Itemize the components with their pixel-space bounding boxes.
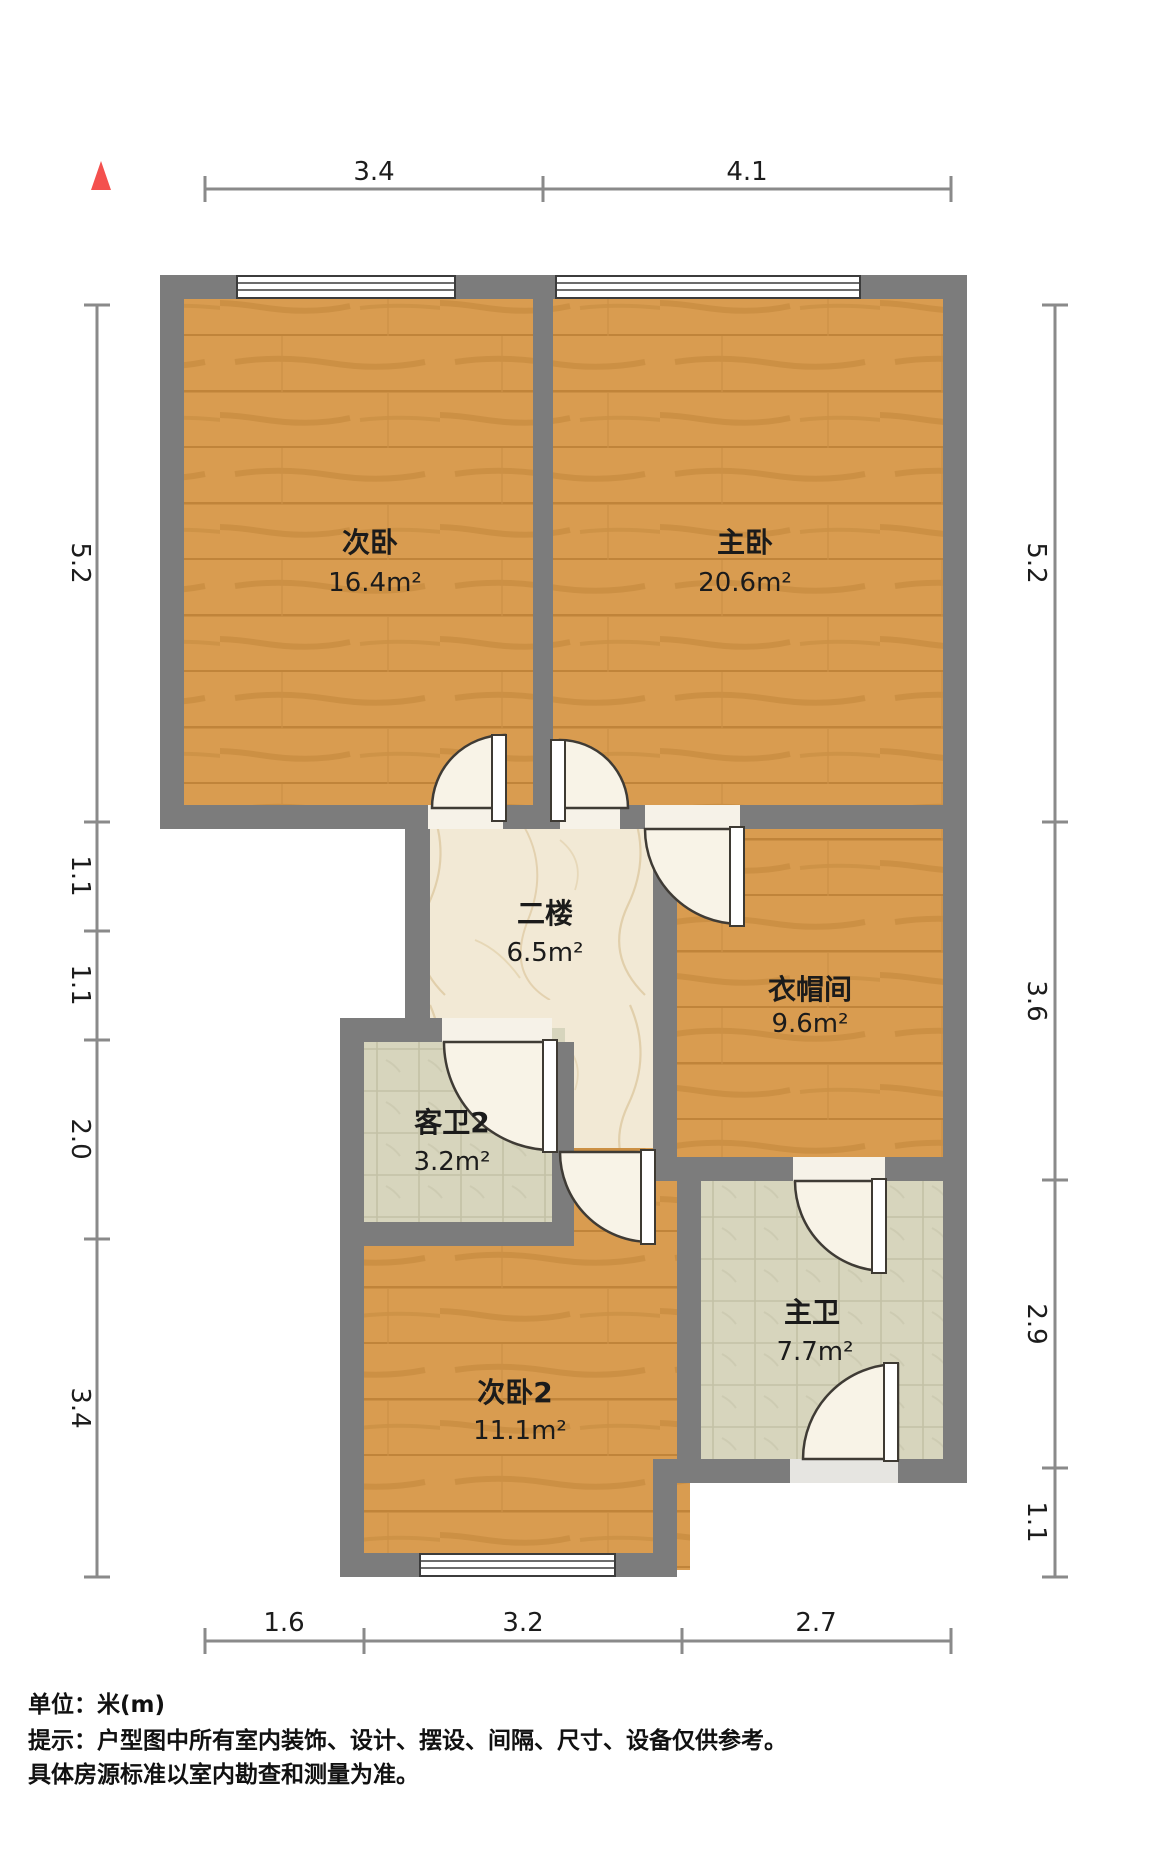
room-area-bedroom2: 16.4m²: [328, 568, 422, 598]
dim-right-4: 1.1: [1021, 1501, 1051, 1542]
dim-top-1: 3.4: [353, 157, 394, 187]
threshold: [645, 805, 740, 829]
room-area-cloakroom: 9.6m²: [771, 1009, 848, 1039]
dim-right-1: 5.2: [1021, 542, 1051, 583]
dim-top-2: 4.1: [726, 157, 767, 187]
room-area-hall: 6.5m²: [506, 938, 583, 968]
dim-bottom-3: 2.7: [795, 1608, 836, 1638]
room-name-cloakroom: 衣帽间: [768, 973, 852, 1006]
room-name-bedroom2: 次卧: [342, 526, 398, 559]
wall-bedroom-divider: [533, 275, 553, 808]
wall-right: [943, 275, 967, 1483]
room-area-master-bath: 7.7m²: [776, 1337, 853, 1367]
dim-bottom-1: 1.6: [263, 1608, 304, 1638]
wall-bedrooms-bottom: [160, 805, 428, 829]
wall-guest-bath-bottom: [340, 1222, 574, 1246]
window: [556, 276, 860, 298]
room-area-bedroom3: 11.1m²: [473, 1416, 567, 1446]
wall-guest-bath-top: [340, 1018, 442, 1042]
dim-left-3: 1.1: [65, 964, 95, 1005]
floor-plan-svg: 3.4 4.1 5.2 1.1 1.1 2.0 3.4 5.2 3.6 2.9 …: [0, 0, 1156, 1866]
footer-notes: 单位：米(m) 提示：户型图中所有室内装饰、设计、摆设、间隔、尺寸、设备仅供参考…: [28, 1691, 787, 1788]
room-name-bedroom3: 次卧2: [477, 1376, 552, 1409]
floor-plan-canvas: 3.4 4.1 5.2 1.1 1.1 2.0 3.4 5.2 3.6 2.9 …: [0, 0, 1156, 1866]
threshold: [793, 1157, 885, 1181]
note-line-1: 提示：户型图中所有室内装饰、设计、摆设、间隔、尺寸、设备仅供参考。: [28, 1727, 787, 1754]
wall-cloakroom-bath-divider: [885, 1157, 943, 1181]
dim-left-1: 5.2: [65, 542, 95, 583]
dim-left-2: 1.1: [65, 855, 95, 896]
unit-label: 单位：米(m): [28, 1691, 165, 1718]
wall-west-lower: [340, 1018, 364, 1577]
wall-bedrooms-bottom: [740, 805, 967, 829]
window: [420, 1554, 615, 1576]
room-name-master-bath: 主卫: [784, 1296, 840, 1329]
dim-left-5: 3.4: [65, 1387, 95, 1428]
dimension-right: 5.2 3.6 2.9 1.1: [1021, 305, 1068, 1577]
room-name-master-bedroom: 主卧: [717, 526, 773, 559]
dim-right-2: 3.6: [1021, 980, 1051, 1021]
wall-hall-left: [405, 829, 430, 1042]
dim-right-3: 2.9: [1021, 1303, 1051, 1344]
dim-left-4: 2.0: [65, 1118, 95, 1159]
dimension-bottom: 1.6 3.2 2.7: [205, 1608, 951, 1654]
dimension-left: 5.2 1.1 1.1 2.0 3.4: [65, 305, 110, 1577]
threshold: [790, 1459, 898, 1483]
wall-cloakroom-bath-divider: [653, 1157, 793, 1181]
wall-master-bath-left: [677, 1157, 701, 1483]
wall-master-bath-bottom: [898, 1459, 943, 1483]
threshold: [442, 1018, 552, 1042]
note-line-2: 具体房源标准以室内勘查和测量为准。: [28, 1761, 419, 1788]
wall-left: [160, 275, 184, 829]
dim-bottom-2: 3.2: [502, 1608, 543, 1638]
room-name-guest-bath: 客卫2: [414, 1106, 489, 1139]
dimension-top: 3.4 4.1: [205, 157, 951, 202]
north-arrow-icon: [91, 161, 111, 190]
room-name-hall: 二楼: [517, 897, 573, 930]
window: [237, 276, 455, 298]
room-area-guest-bath: 3.2m²: [413, 1147, 490, 1177]
room-area-master-bedroom: 20.6m²: [698, 568, 792, 598]
